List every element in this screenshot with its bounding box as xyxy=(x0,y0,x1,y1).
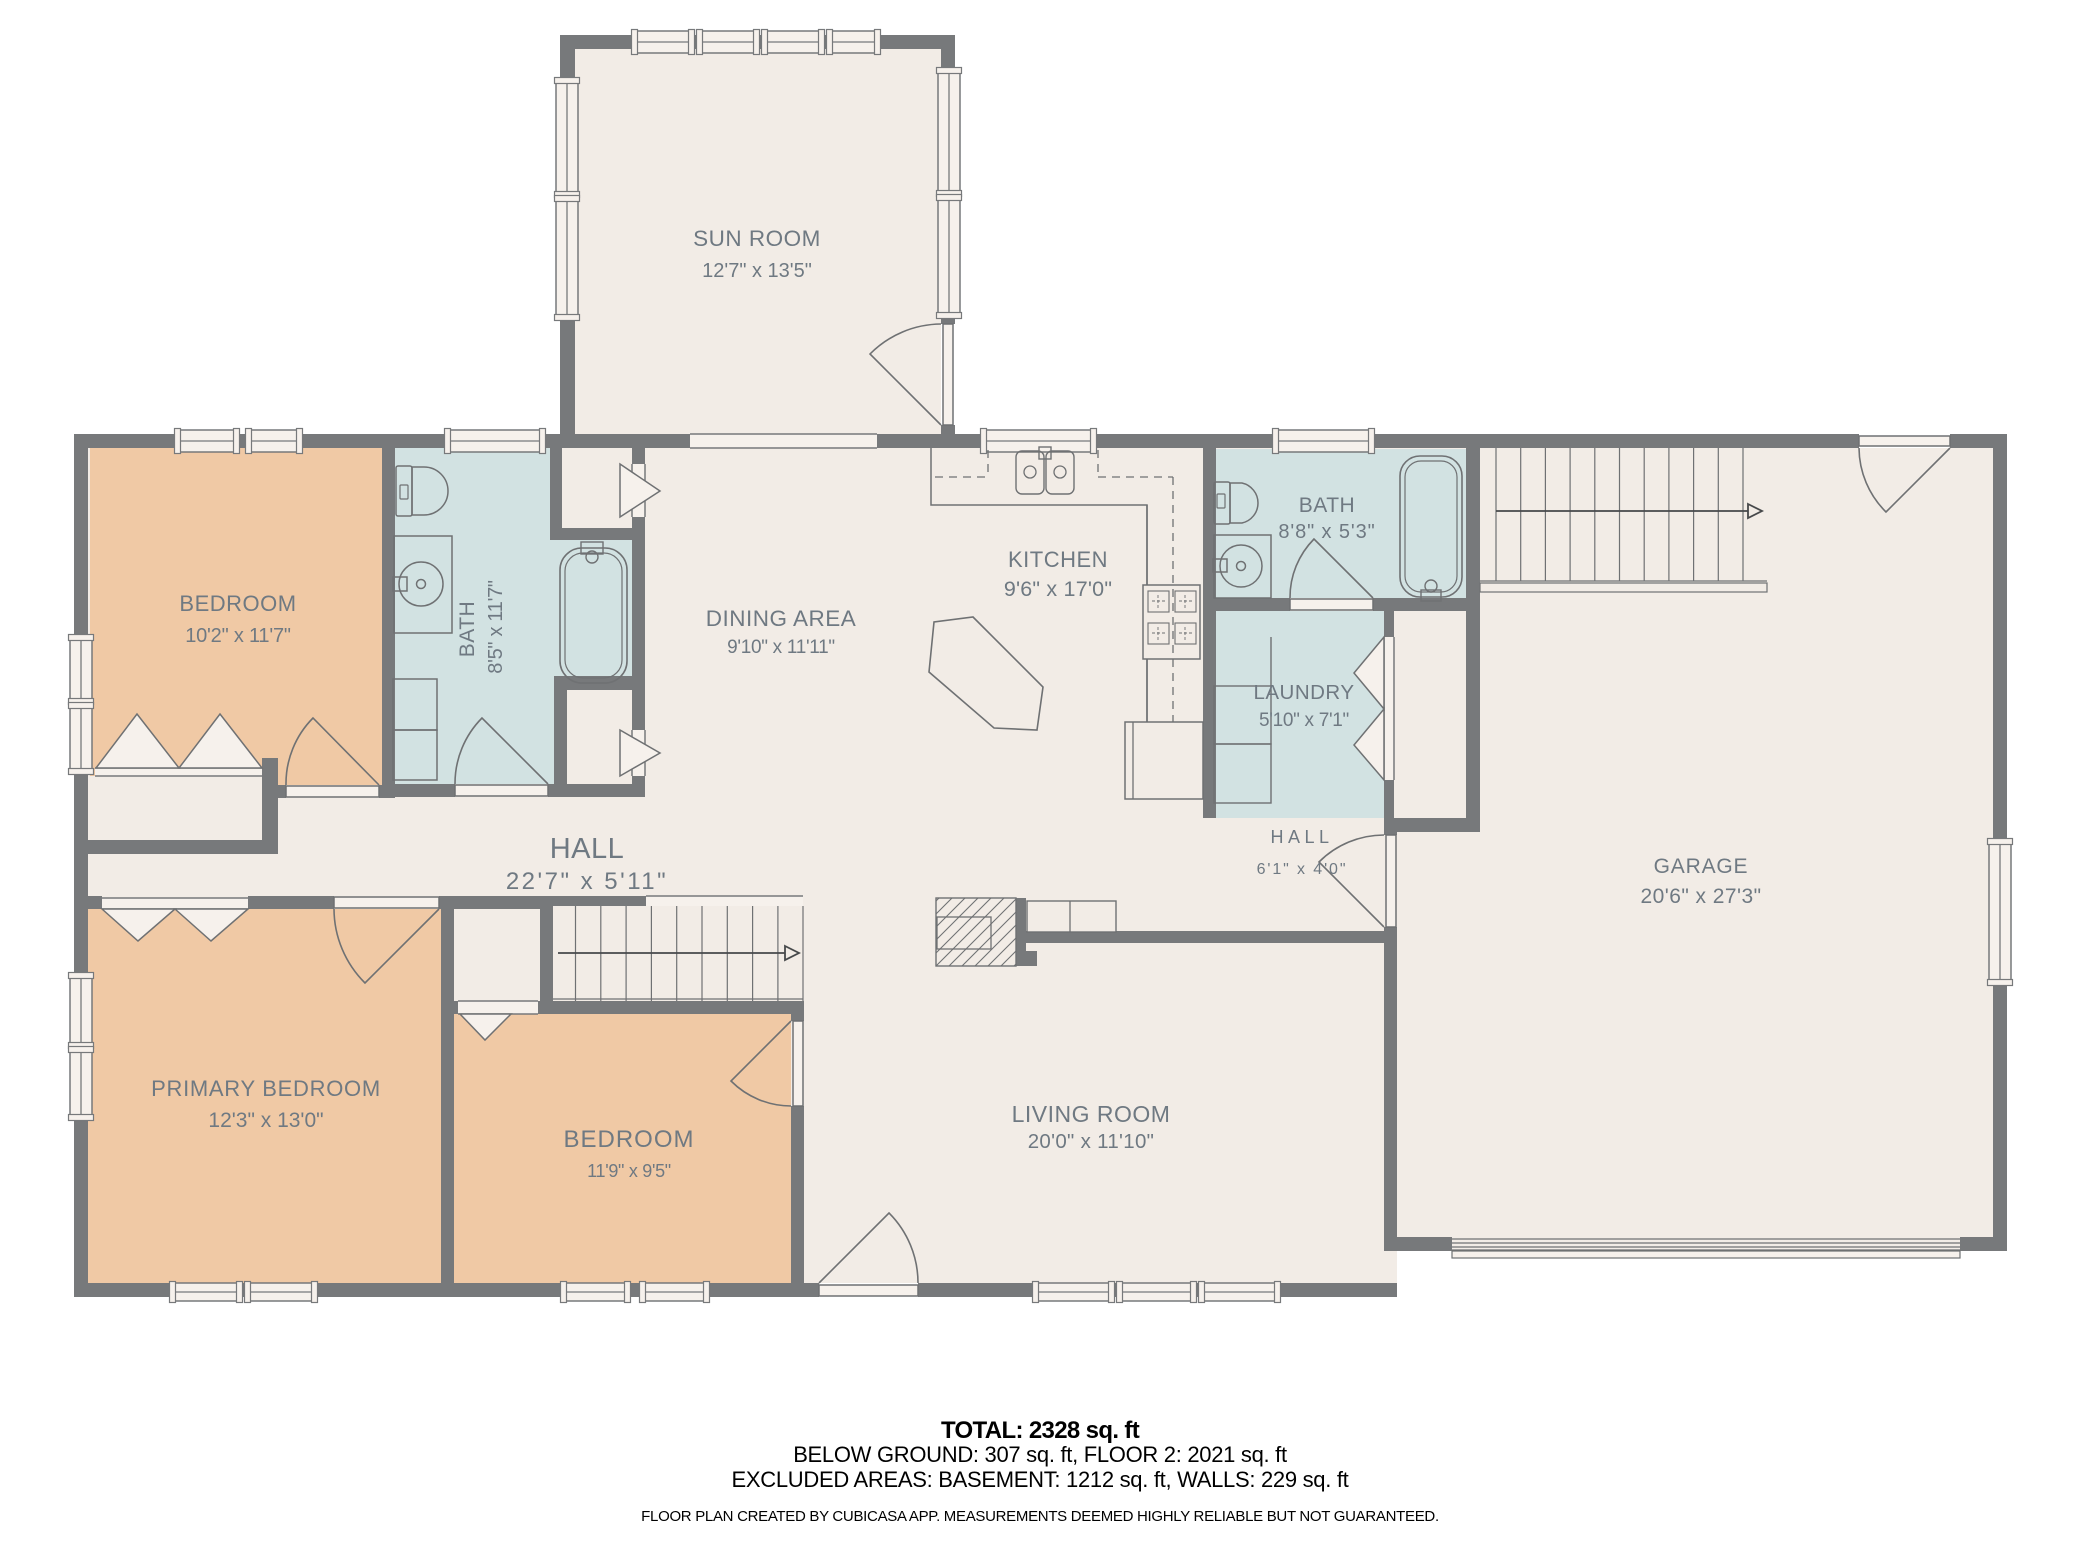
svg-text:BATH: BATH xyxy=(456,601,479,657)
svg-text:KITCHEN: KITCHEN xyxy=(1008,547,1108,572)
svg-text:GARAGE: GARAGE xyxy=(1654,855,1749,878)
svg-text:HALL: HALL xyxy=(1270,827,1333,847)
svg-text:5'10" x 7'1": 5'10" x 7'1" xyxy=(1259,710,1349,731)
svg-text:9'6" x 17'0": 9'6" x 17'0" xyxy=(1004,577,1112,601)
svg-text:TOTAL: 2328 sq. ft: TOTAL: 2328 sq. ft xyxy=(941,1417,1140,1444)
svg-text:10'2" x 11'7": 10'2" x 11'7" xyxy=(185,625,291,647)
svg-text:6'1" x 4'0": 6'1" x 4'0" xyxy=(1257,861,1348,878)
svg-text:HALL: HALL xyxy=(550,833,625,865)
svg-text:8'8" x 5'3": 8'8" x 5'3" xyxy=(1278,521,1375,543)
svg-text:EXCLUDED AREAS: BASEMENT: 1212: EXCLUDED AREAS: BASEMENT: 1212 sq. ft, W… xyxy=(732,1467,1349,1492)
svg-text:9'10" x 11'11": 9'10" x 11'11" xyxy=(727,637,835,658)
svg-text:20'6" x 27'3": 20'6" x 27'3" xyxy=(1640,885,1761,908)
svg-text:20'0" x 11'10": 20'0" x 11'10" xyxy=(1028,1130,1155,1153)
svg-text:11'9" x 9'5": 11'9" x 9'5" xyxy=(587,1161,671,1181)
svg-text:12'7" x 13'5": 12'7" x 13'5" xyxy=(702,260,812,282)
svg-text:DINING AREA: DINING AREA xyxy=(706,606,857,631)
svg-text:12'3" x 13'0": 12'3" x 13'0" xyxy=(208,1109,323,1132)
svg-text:8'5" x 11'7": 8'5" x 11'7" xyxy=(485,580,507,674)
svg-text:FLOOR PLAN CREATED BY CUBICASA: FLOOR PLAN CREATED BY CUBICASA APP. MEAS… xyxy=(641,1508,1439,1525)
svg-text:BELOW GROUND: 307 sq. ft, FLOO: BELOW GROUND: 307 sq. ft, FLOOR 2: 2021 … xyxy=(793,1442,1287,1467)
svg-text:PRIMARY BEDROOM: PRIMARY BEDROOM xyxy=(151,1076,381,1101)
svg-text:BEDROOM: BEDROOM xyxy=(179,591,296,616)
svg-text:LAUNDRY: LAUNDRY xyxy=(1253,681,1354,704)
svg-text:BATH: BATH xyxy=(1299,494,1355,517)
svg-text:22'7" x 5'11": 22'7" x 5'11" xyxy=(506,868,668,895)
svg-text:SUN ROOM: SUN ROOM xyxy=(693,226,821,251)
svg-text:BEDROOM: BEDROOM xyxy=(563,1126,694,1153)
svg-text:LIVING ROOM: LIVING ROOM xyxy=(1012,1101,1171,1127)
